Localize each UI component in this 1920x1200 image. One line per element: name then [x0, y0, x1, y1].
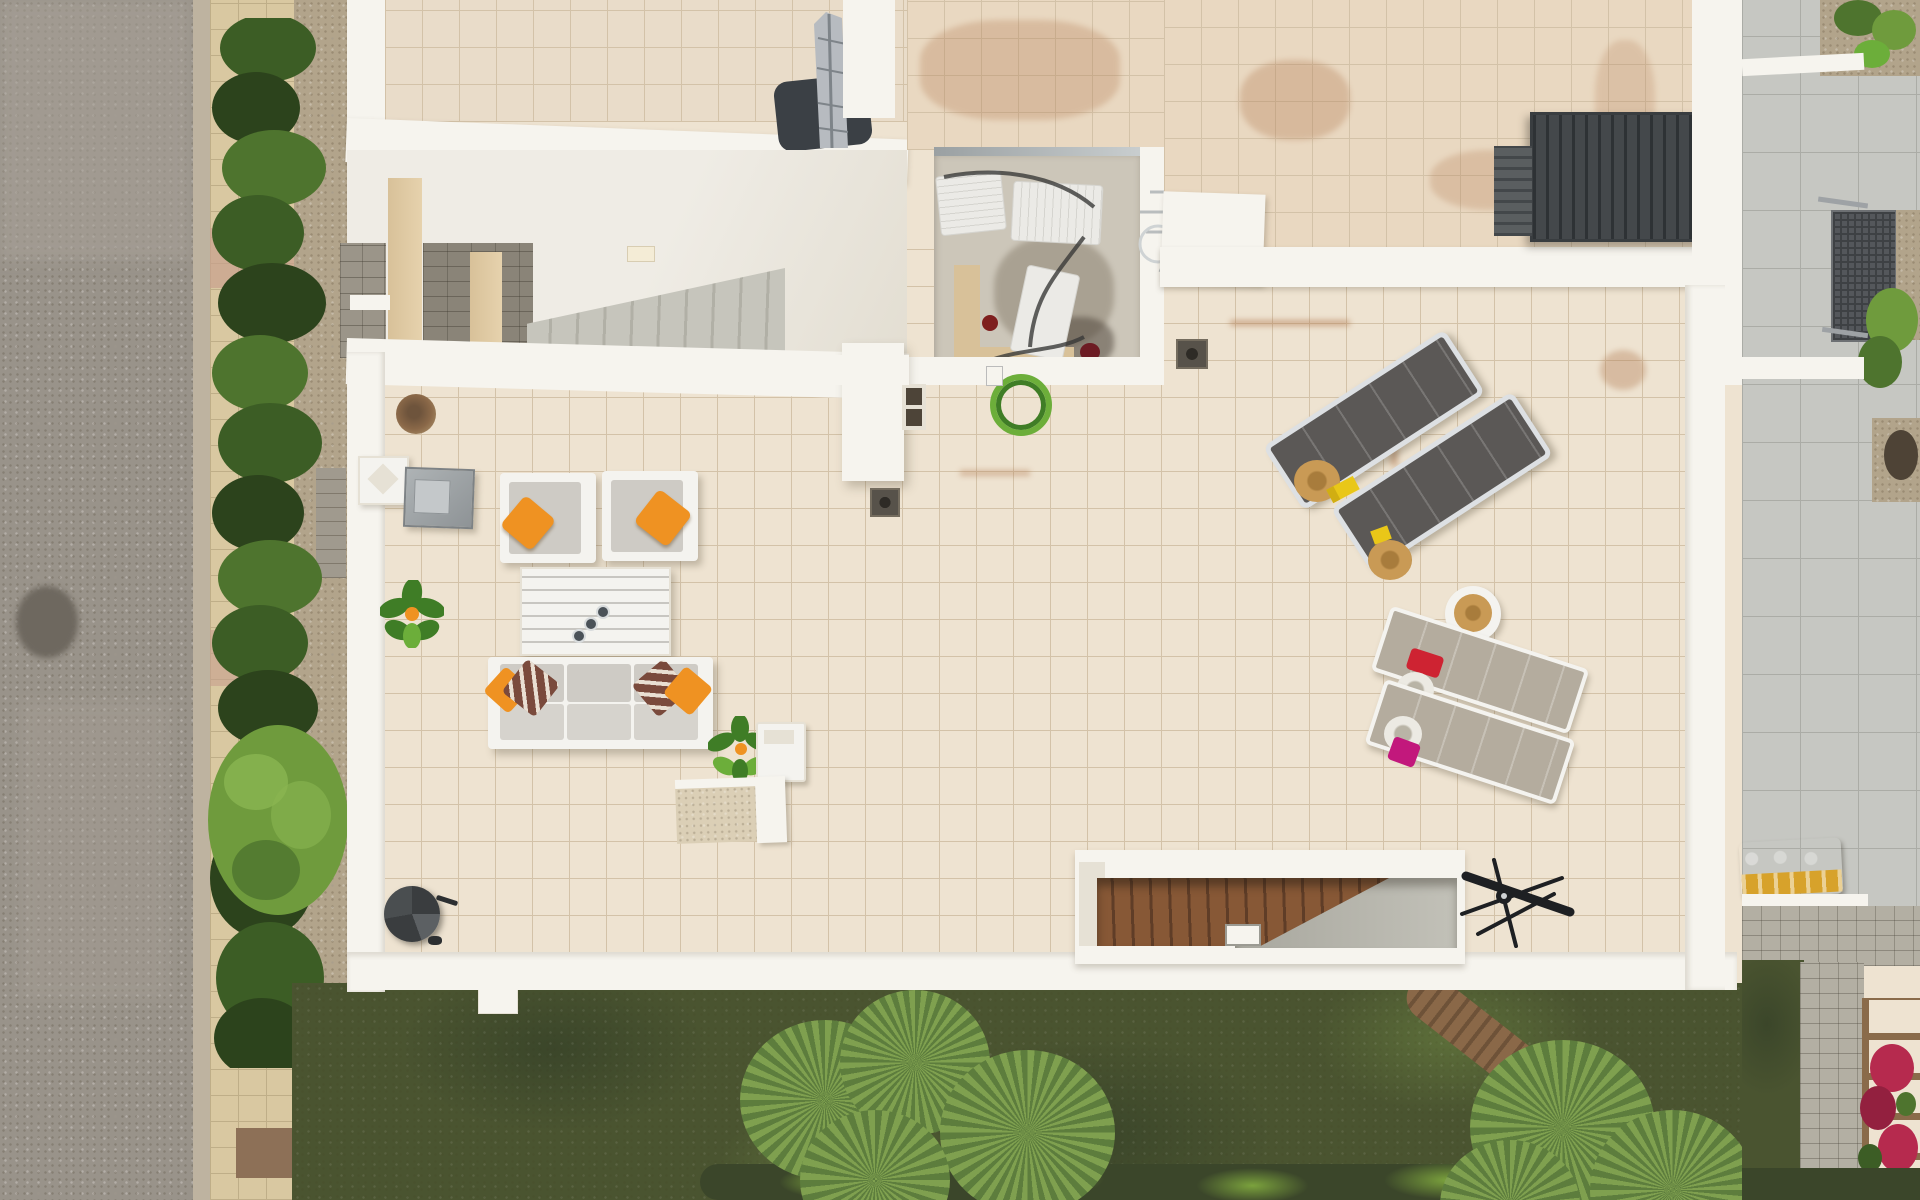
bench-beige-block [675, 785, 761, 844]
grill-cart [403, 467, 475, 529]
rock-on-road [16, 586, 78, 658]
straw-hat [1454, 594, 1492, 632]
sofa [488, 657, 713, 749]
drain-grate [870, 488, 900, 517]
roof-parapet-band [1160, 247, 1723, 287]
dried-agave-plant [396, 394, 436, 434]
cube-side-table [756, 722, 806, 782]
metal-edge [934, 147, 1142, 156]
kettle-barbecue [384, 886, 440, 942]
bbq-wheel [428, 936, 442, 945]
stair-doormat [1225, 924, 1261, 946]
sidewalk-plaque [236, 1128, 292, 1178]
neighbor-lawn [1742, 960, 1804, 1174]
cube-inset [764, 730, 794, 744]
concrete-bench [675, 776, 789, 846]
rust-stain [1600, 350, 1646, 390]
concrete-footing [478, 986, 518, 1014]
red-valve [982, 315, 998, 331]
parapet-left [347, 352, 385, 992]
ceiling-light [627, 246, 655, 262]
potted-plant [380, 580, 444, 648]
cables [934, 147, 1142, 383]
vent-opening [906, 388, 922, 405]
parapet-top [385, 355, 909, 385]
vent-grille [902, 384, 926, 430]
cup [596, 605, 610, 619]
bougainvillea [1856, 1038, 1920, 1188]
rust-stain [920, 20, 1120, 120]
utility-enclosure [934, 147, 1142, 383]
shrub [1852, 282, 1920, 402]
courtyard-column [388, 178, 422, 358]
aerial-photo-villa-roof-terrace [0, 0, 1920, 1200]
sofa-seat-cushion [567, 704, 631, 740]
neighbor-ledge [1742, 357, 1864, 379]
armchair [500, 473, 596, 563]
vent-opening [906, 409, 922, 426]
grill-tray [413, 479, 450, 514]
rust-stain [960, 470, 1030, 476]
square-side-table [358, 456, 409, 505]
white-wall-band [843, 0, 895, 118]
stone-block-path [1742, 906, 1920, 966]
dark-hedge-bottom-right [1742, 1168, 1920, 1200]
folded-floor-parasol [1458, 854, 1578, 954]
sofa-back-cushion [567, 664, 631, 702]
armchair [602, 471, 698, 561]
rust-stain [1230, 320, 1350, 326]
straw-hat [1368, 540, 1412, 580]
table-detail [367, 463, 398, 494]
coffee-table [520, 567, 671, 656]
stone-block-column [1800, 962, 1864, 1174]
courtyard-ledge [350, 295, 390, 310]
round-tree [206, 720, 356, 920]
cup [584, 617, 598, 631]
parapet-right [1685, 285, 1725, 990]
road-patch [20, 700, 170, 1000]
parapet-bottom [347, 952, 1737, 990]
stairwell-surround [1075, 850, 1465, 964]
drain-grate [1176, 339, 1208, 369]
rust-stain [1240, 60, 1350, 140]
hose-tap [986, 366, 1003, 386]
pergola-side-box [1494, 146, 1532, 236]
bench-white-side [755, 776, 787, 843]
tree-pit [1884, 430, 1918, 480]
road-patch [0, 0, 190, 260]
cup [572, 629, 586, 643]
